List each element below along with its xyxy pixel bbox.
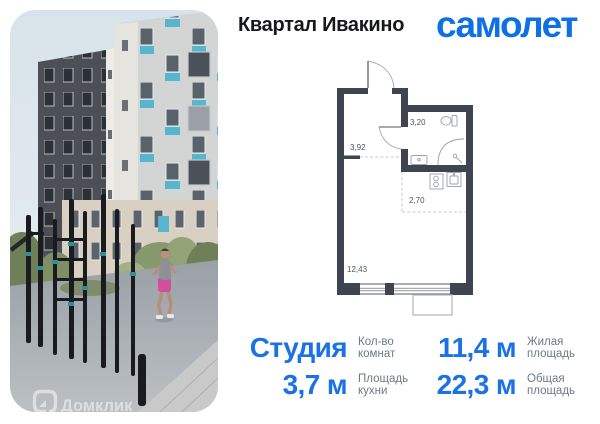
living-room-area-label: 12,43 [347,265,368,274]
photo-scene: Домклик [10,10,218,412]
floorplan-drawing: 3,92 3,20 2,70 12,43 [333,55,478,317]
total-area-label: Общая площадь [516,372,596,398]
rooms-label: Кол-во комнат [347,335,426,361]
balcony [413,295,452,315]
building-photo: Домклик [10,10,218,412]
kitchen-area-value: 3,7 м [230,366,347,403]
total-area-value: 22,3 м [426,366,516,403]
bathroom-door [379,127,401,149]
living-area-label: Жилая площадь [516,335,596,361]
toilet-icon [452,116,457,127]
living-area-value: 11,4 м [426,329,516,366]
samolet-logo: самолет [436,4,596,46]
rooms-value: Студия [230,329,347,366]
project-title: Квартал Ивакино [238,14,438,37]
window-pillar [385,283,394,295]
kitchen-fixtures [430,173,461,190]
window-lines [360,284,450,294]
hallway-area-label: 3,92 [350,143,366,152]
apartment-details: Студия Кол-во комнат 11,4 м Жилая площад… [230,329,596,403]
kitchen-area-label: 2,70 [409,196,425,205]
floorplan: 3,92 3,20 2,70 12,43 [333,55,478,317]
watermark-text: Домклик [61,397,133,412]
entrance-door [368,61,394,88]
bathroom-area-label: 3,20 [410,118,426,127]
kitchen-area-label: Площадь кухни [347,372,426,398]
